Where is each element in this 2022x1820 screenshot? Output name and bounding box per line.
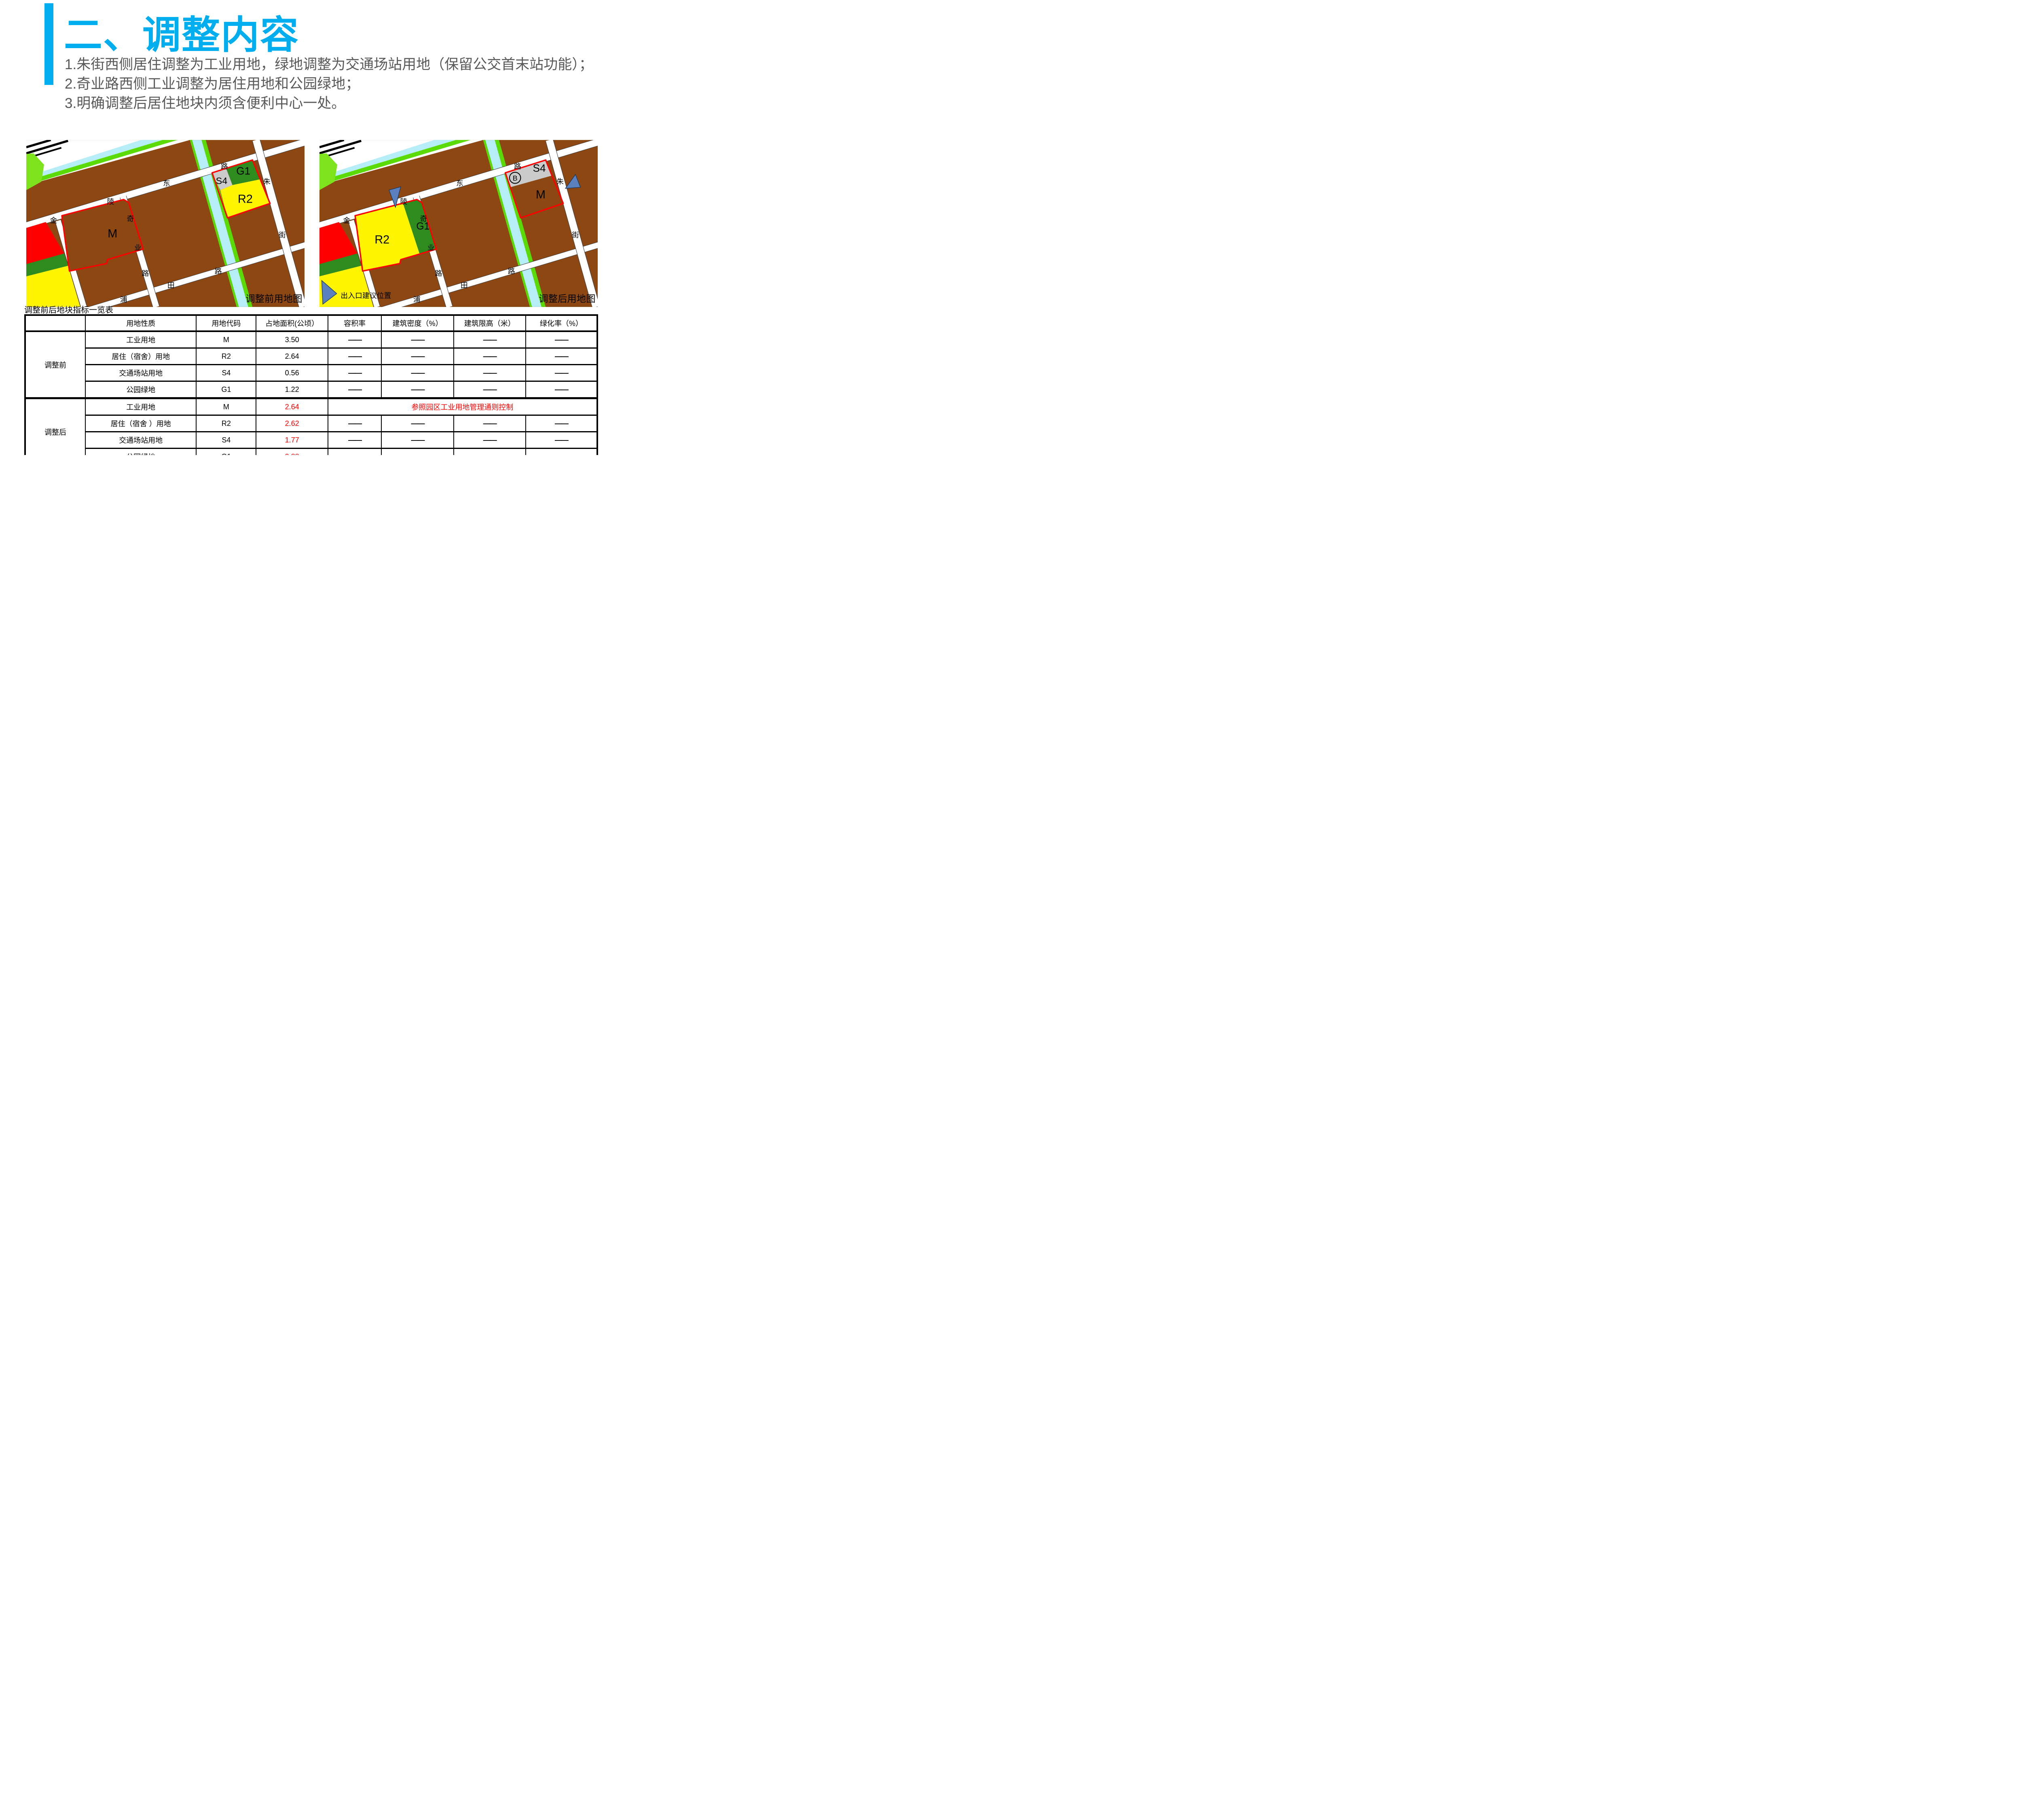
header-area: 占地面积(公顷） xyxy=(256,315,328,331)
label-s4-before: S4 xyxy=(216,176,228,186)
cell-dash: —— xyxy=(454,381,526,398)
cell-area: 1.77 xyxy=(256,432,328,449)
road-label-ling: 陵 xyxy=(107,197,114,205)
accent-bar xyxy=(44,3,53,85)
road-label-zhu: 朱 xyxy=(556,178,564,186)
header-green: 绿化率（%） xyxy=(526,315,597,331)
cell-name: 工业用地 xyxy=(85,398,196,415)
cell-dash: —— xyxy=(526,381,597,398)
map-after-caption: 调整后用地图 xyxy=(539,294,595,304)
cell-dash: —— xyxy=(454,415,526,432)
cell-dash: —— xyxy=(328,348,382,365)
map-after: 金 陵 东 路 奇 业 路 朱 街 浦 田 路 B S4 M R2 G1 出入口… xyxy=(319,140,598,307)
cell-code: G1 xyxy=(196,381,256,398)
cell-name: 居住（宿舍 ）用地 xyxy=(85,415,196,432)
table-row: 调整前 工业用地 M 3.50 —— —— —— —— xyxy=(25,331,597,348)
cell-area: 2.64 xyxy=(256,398,328,415)
cell-area: 0.88 xyxy=(256,449,328,455)
label-m-before: M xyxy=(108,227,117,240)
cell-name: 居住（宿舍）用地 xyxy=(85,348,196,365)
table-row: 交通场站用地 S4 0.56 —— —— —— —— xyxy=(25,365,597,381)
cell-dash: —— xyxy=(454,432,526,449)
table-row: 调整后 工业用地 M 2.64 参照园区工业用地管理通则控制 xyxy=(25,398,597,415)
cell-dash: —— xyxy=(328,381,382,398)
table-title: 调整前后地块指标一览表 xyxy=(24,303,113,315)
cell-dash: —— xyxy=(454,348,526,365)
road-label-lu2: 路 xyxy=(435,269,442,277)
road-label-dong: 东 xyxy=(163,179,170,187)
table-row: 交通场站用地 S4 1.77 —— —— —— —— xyxy=(25,432,597,449)
road-label-jin: 金 xyxy=(50,216,57,224)
cell-code: M xyxy=(196,398,256,415)
body-line-1: 1.朱街西侧居住调整为工业用地，绿地调整为交通场站用地（保留公交首末站功能）； xyxy=(65,55,603,74)
body-text: 1.朱街西侧居住调整为工业用地，绿地调整为交通场站用地（保留公交首末站功能）； … xyxy=(65,55,603,113)
header-blank xyxy=(25,315,85,331)
label-g1-after: G1 xyxy=(416,221,429,232)
cell-code: M xyxy=(196,331,256,348)
map-before-svg: 金 陵 东 路 奇 业 路 朱 街 浦 田 路 M S4 G1 R2 调整前用地… xyxy=(26,140,305,307)
table-header-row: 用地性质 用地代码 占地面积(公顷） 容积率 建筑密度（%） 建筑限高（米） 绿… xyxy=(25,315,597,331)
cell-dash: —— xyxy=(381,449,453,455)
road-label-jin: 金 xyxy=(343,216,350,224)
cell-dash: —— xyxy=(381,331,453,348)
legend-label: 出入口建议位置 xyxy=(341,292,391,300)
cell-dash: —— xyxy=(526,432,597,449)
cell-dash: —— xyxy=(454,365,526,381)
cell-note: 参照园区工业用地管理通则控制 xyxy=(328,398,597,415)
cell-code: G1 xyxy=(196,449,256,455)
cell-dash: —— xyxy=(381,415,453,432)
map-after-svg: 金 陵 东 路 奇 业 路 朱 街 浦 田 路 B S4 M R2 G1 出入口… xyxy=(319,140,598,307)
cell-code: S4 xyxy=(196,365,256,381)
road-label-dong: 东 xyxy=(456,179,463,187)
cell-name: 工业用地 xyxy=(85,331,196,348)
cell-dash: —— xyxy=(328,449,382,455)
cell-code: R2 xyxy=(196,348,256,365)
header-density: 建筑密度（%） xyxy=(381,315,453,331)
cell-area: 2.62 xyxy=(256,415,328,432)
cell-dash: —— xyxy=(328,331,382,348)
header-far: 容积率 xyxy=(328,315,382,331)
cell-area: 1.22 xyxy=(256,381,328,398)
cell-area: 2.64 xyxy=(256,348,328,365)
road-label-pu: 浦 xyxy=(413,296,421,304)
slide-page: 二、调整内容 1.朱街西侧居住调整为工业用地，绿地调整为交通场站用地（保留公交首… xyxy=(0,0,607,455)
label-r2-before: R2 xyxy=(238,193,253,206)
cell-dash: —— xyxy=(526,365,597,381)
road-label-pu: 浦 xyxy=(120,296,127,304)
cell-dash: —— xyxy=(526,415,597,432)
road-label-zhu: 朱 xyxy=(263,178,271,186)
road-label-jie: 街 xyxy=(279,231,286,239)
table-row: 居住（宿舍）用地 R2 2.64 —— —— —— —— xyxy=(25,348,597,365)
cell-dash: —— xyxy=(526,348,597,365)
cell-dash: —— xyxy=(328,365,382,381)
road-label-lu: 路 xyxy=(514,163,521,171)
header-height: 建筑限高（米） xyxy=(454,315,526,331)
cell-dash: —— xyxy=(454,449,526,455)
table-row: 居住（宿舍 ）用地 R2 2.62 —— —— —— —— xyxy=(25,415,597,432)
road-label-jie: 街 xyxy=(572,231,579,239)
label-r2-after: R2 xyxy=(374,233,389,246)
body-line-3: 3.明确调整后居住地块内须含便利中心一处。 xyxy=(65,94,603,113)
cell-name: 交通场站用地 xyxy=(85,432,196,449)
road-label-ye: 业 xyxy=(134,244,142,252)
label-m-after: M xyxy=(536,188,546,201)
road-label-lu3: 路 xyxy=(215,267,222,275)
table-row: 公园绿地 G1 1.22 —— —— —— —— xyxy=(25,381,597,398)
road-label-tian: 田 xyxy=(167,281,175,289)
road-label-lu: 路 xyxy=(221,163,228,171)
map-before: 金 陵 东 路 奇 业 路 朱 街 浦 田 路 M S4 G1 R2 调整前用地… xyxy=(26,140,305,307)
body-line-2: 2.奇业路西侧工业调整为居住用地和公园绿地； xyxy=(65,74,603,94)
map-before-caption: 调整前用地图 xyxy=(245,294,302,304)
road-label-ye: 业 xyxy=(427,244,435,252)
cell-code: R2 xyxy=(196,415,256,432)
cell-area: 3.50 xyxy=(256,331,328,348)
cell-dash: —— xyxy=(381,365,453,381)
cell-dash: —— xyxy=(526,331,597,348)
cell-dash: —— xyxy=(381,348,453,365)
cell-dash: —— xyxy=(381,432,453,449)
label-s4-after: S4 xyxy=(533,162,546,174)
road-label-tian: 田 xyxy=(461,281,468,289)
cell-name: 公园绿地 xyxy=(85,449,196,455)
road-label-lu3: 路 xyxy=(508,267,515,275)
road-label-ling: 陵 xyxy=(400,197,408,205)
cell-dash: —— xyxy=(328,432,382,449)
cell-dash: —— xyxy=(328,415,382,432)
indicator-table: 用地性质 用地代码 占地面积(公顷） 容积率 建筑密度（%） 建筑限高（米） 绿… xyxy=(24,314,598,455)
cell-code: S4 xyxy=(196,432,256,449)
cell-dash: —— xyxy=(526,449,597,455)
label-g1-before: G1 xyxy=(236,165,250,177)
road-label-lu2: 路 xyxy=(142,269,149,277)
group-label-before: 调整前 xyxy=(25,331,85,398)
b-marker-label: B xyxy=(513,174,518,182)
header-code: 用地代码 xyxy=(196,315,256,331)
road-label-qi: 奇 xyxy=(127,215,134,223)
cell-dash: —— xyxy=(454,331,526,348)
cell-name: 公园绿地 xyxy=(85,381,196,398)
cell-dash: —— xyxy=(381,381,453,398)
cell-name: 交通场站用地 xyxy=(85,365,196,381)
group-label-after: 调整后 xyxy=(25,398,85,455)
cell-area: 0.56 xyxy=(256,365,328,381)
table-row: 公园绿地 G1 0.88 —— —— —— —— xyxy=(25,449,597,455)
page-title: 二、调整内容 xyxy=(64,4,299,59)
header-land-use: 用地性质 xyxy=(85,315,196,331)
